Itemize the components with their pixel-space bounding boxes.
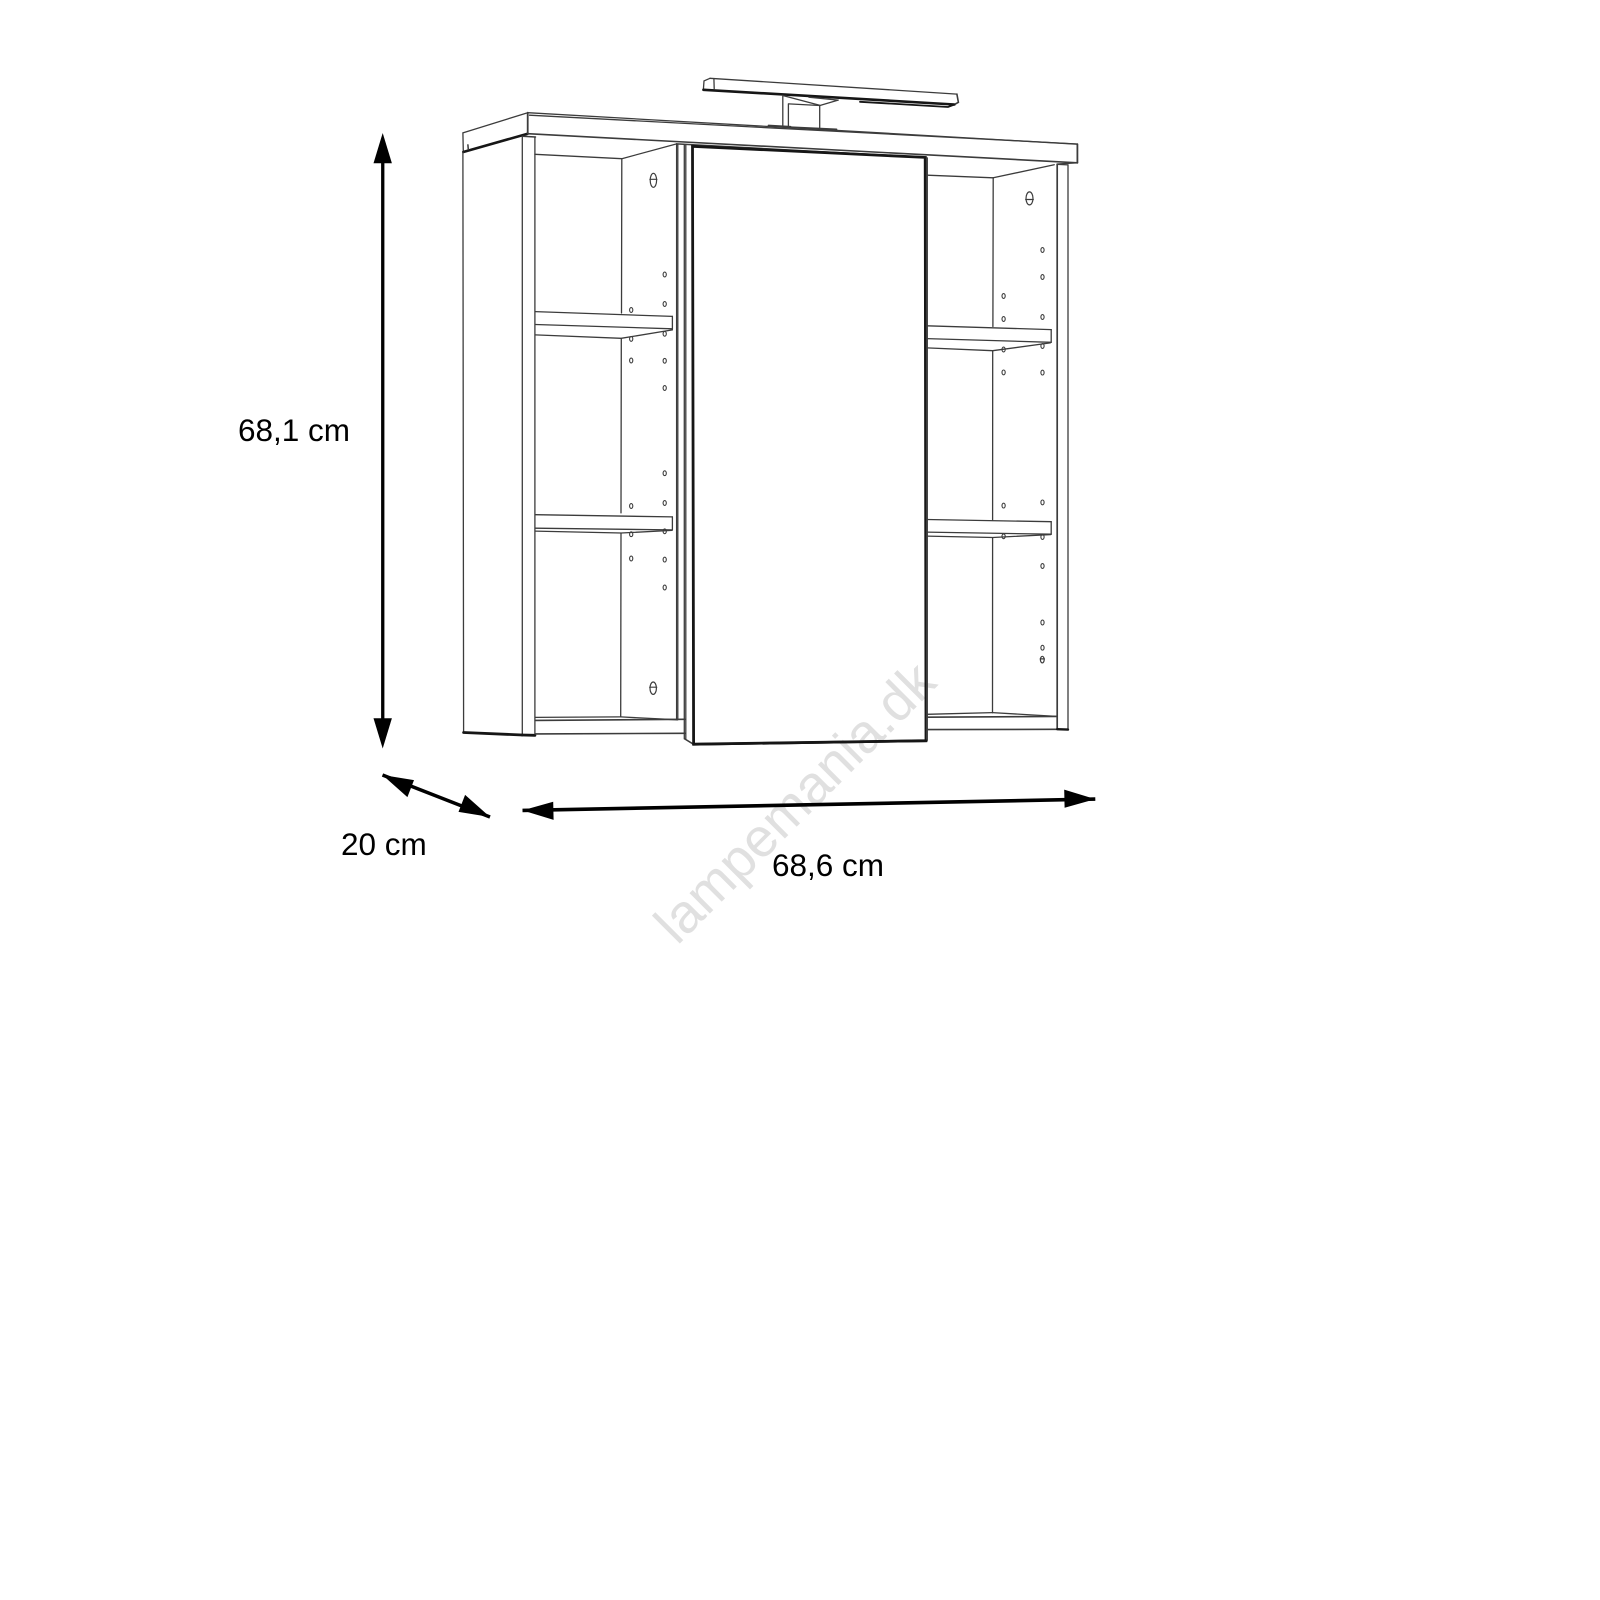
svg-text:20 cm: 20 cm — [341, 826, 427, 862]
svg-text:68,6 cm: 68,6 cm — [772, 847, 884, 883]
svg-text:68,1 cm: 68,1 cm — [238, 412, 350, 448]
